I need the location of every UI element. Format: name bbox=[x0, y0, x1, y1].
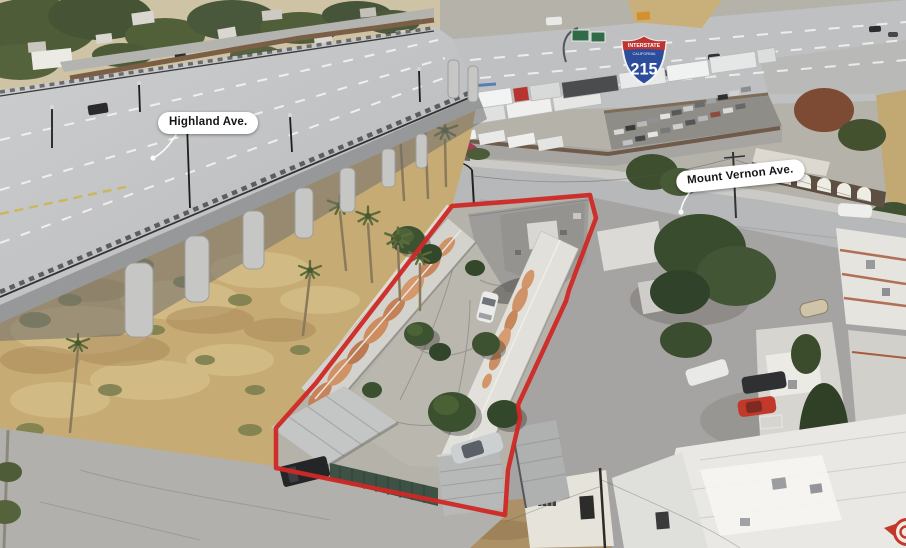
shield-route-number: 215 bbox=[630, 60, 657, 78]
interstate-shield-graphic: INTERSTATE CALIFORNIA 215 bbox=[620, 33, 668, 88]
street-label-highland-text: Highland Ave. bbox=[169, 116, 247, 128]
street-label-highland: Highland Ave. bbox=[158, 112, 258, 134]
white-sedan bbox=[838, 203, 873, 218]
aerial-scene bbox=[0, 0, 906, 548]
shield-state-text: CALIFORNIA bbox=[633, 52, 656, 56]
shield-band-text: INTERSTATE bbox=[628, 43, 661, 49]
interstate-shield: INTERSTATE CALIFORNIA 215 bbox=[620, 33, 668, 88]
aerial-photo: Highland Ave. Mount Vernon Ave. INTERSTA… bbox=[0, 0, 906, 548]
